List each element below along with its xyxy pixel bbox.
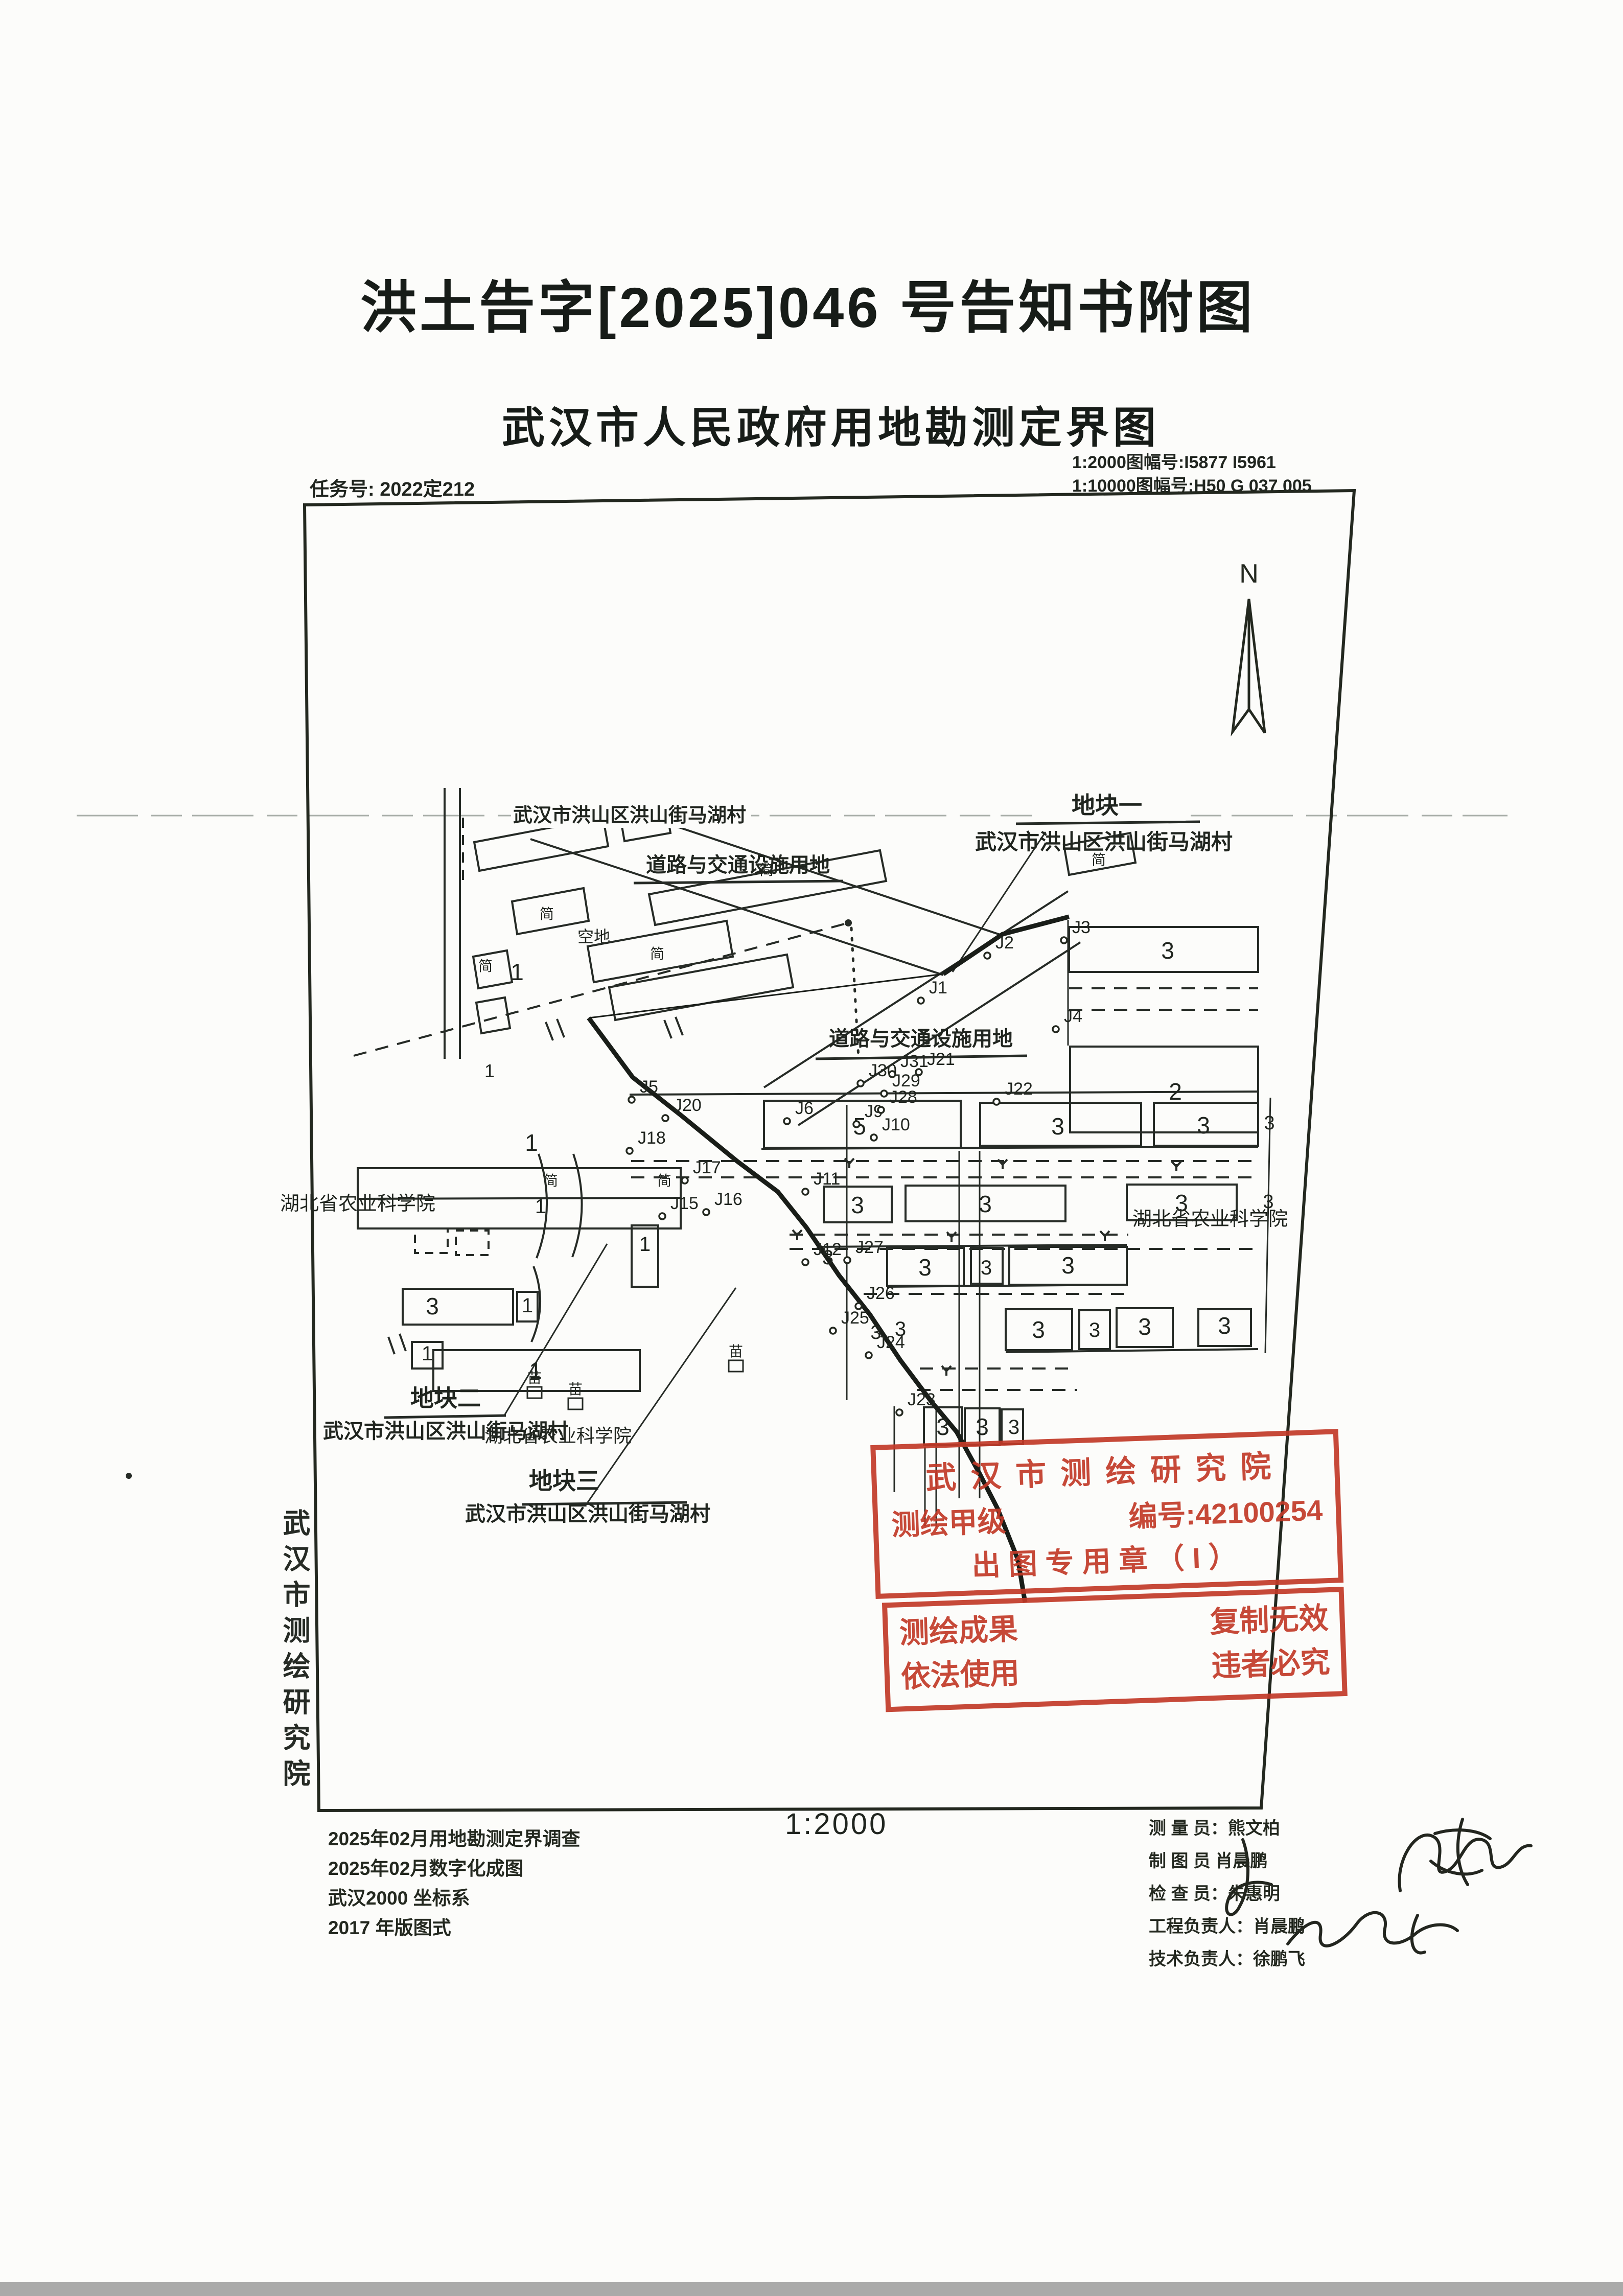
boundary-point-marker	[627, 1148, 633, 1154]
map-region-label: 武汉市洪山区洪山街马湖村	[513, 805, 746, 826]
map-region-label: 武汉市洪山区洪山街马湖村	[323, 1420, 568, 1443]
stamp-upper-box: 武汉市测绘研究院 测绘甲级 编号:42100254 出图专用章（I）	[870, 1429, 1343, 1599]
boundary-point-marker	[830, 1328, 836, 1334]
scanned-survey-document: 洪土告字[2025]046 号告知书附图 武汉市人民政府用地勘测定界图 1:20…	[0, 0, 1623, 2296]
boundary-point-marker	[1061, 937, 1067, 943]
stamp-lower-box: 测绘成果 复制无效 依法使用 违者必究	[882, 1587, 1348, 1712]
boundary-point-marker	[857, 1080, 864, 1086]
parcel-number: 3	[1161, 937, 1174, 964]
boundary-point-label: J24	[877, 1333, 905, 1352]
boundary-point-label: J18	[638, 1128, 666, 1148]
parcel-number: 1	[484, 1060, 495, 1081]
boundary-point-marker	[881, 1091, 887, 1097]
map-notes: 2025年02月用地勘测定界调查 2025年02月数字化成图 武汉2000 坐标…	[328, 1824, 580, 1943]
boundary-point-label: J21	[927, 1050, 955, 1069]
north-arrow-icon	[1233, 599, 1265, 733]
parcel-number: 3	[918, 1254, 932, 1281]
boundary-point-label: J3	[1072, 918, 1091, 937]
map-region-label: 地块三	[529, 1468, 599, 1494]
boundary-point-label: J12	[814, 1240, 842, 1259]
boundary-point-marker	[878, 1107, 884, 1113]
map-region-label: 武汉市洪山区洪山街马湖村	[465, 1503, 710, 1525]
boundary-point-label: J5	[640, 1077, 658, 1097]
north-label: N	[1239, 559, 1259, 589]
building-type-char: 简	[544, 1173, 558, 1189]
boundary-point-label: J4	[1064, 1007, 1082, 1026]
map-region-label: 湖北省农业科学院	[280, 1193, 435, 1215]
building-type-char: 简	[1092, 852, 1106, 868]
parcel-number: 3	[851, 1192, 864, 1218]
parcel-number: 1	[422, 1342, 433, 1365]
stamp-results-label: 测绘成果	[899, 1607, 1019, 1655]
boundary-point-marker	[784, 1118, 790, 1124]
stamp-grade: 测绘甲级	[891, 1498, 1007, 1544]
parcel-number: 1	[511, 959, 524, 985]
boundary-point-marker	[871, 1134, 877, 1141]
boundary-point-label: J23	[908, 1390, 936, 1409]
parcel-number: 3	[1032, 1316, 1045, 1343]
building-type-char: 简	[650, 946, 664, 962]
parcel-number: 3	[1197, 1112, 1210, 1139]
parcel-number: 3	[1089, 1319, 1100, 1341]
scan-edge-artifact	[0, 2282, 1623, 2296]
boundary-point-label: J20	[674, 1096, 702, 1115]
parcel-number: 3	[979, 1191, 992, 1217]
parcel-number: 3	[1263, 1191, 1273, 1213]
note-coordinate-system: 武汉2000 坐标系	[328, 1884, 580, 1913]
boundary-point-marker	[918, 998, 924, 1004]
boundary-point-marker	[853, 1121, 860, 1127]
boundary-point-marker	[1053, 1026, 1059, 1032]
parcel-number: 3	[1008, 1416, 1019, 1439]
building-type-char: 苗	[729, 1343, 743, 1359]
boundary-point-label: J10	[882, 1115, 910, 1134]
map-region-label: 道路与交通设施用地	[829, 1028, 1013, 1050]
building-type-char: 简	[478, 958, 493, 974]
boundary-point-marker	[844, 1257, 850, 1263]
boundary-point-marker	[984, 953, 990, 959]
boundary-point-label: J15	[670, 1194, 699, 1213]
parcel-number: 2	[1169, 1078, 1182, 1105]
boundary-point-label: J11	[814, 1169, 840, 1189]
building-type-char: 简	[657, 1173, 671, 1189]
boundary-point-marker	[896, 1409, 902, 1416]
boundary-point-marker	[889, 1071, 895, 1077]
survey-map: N	[0, 0, 1623, 2296]
credit-project-lead: 工程负责人：肖晨鹏	[1149, 1910, 1305, 1943]
boundary-point-marker	[662, 1115, 668, 1121]
building-type-char: 苗	[527, 1370, 542, 1386]
map-region-label: 地块一	[1072, 792, 1142, 819]
boundary-point-label: J6	[795, 1099, 814, 1118]
building-type-char: 简	[759, 862, 774, 878]
boundary-point-label: J1	[929, 978, 947, 998]
boundary-point-marker	[682, 1177, 688, 1184]
boundary-point-label: J28	[889, 1087, 917, 1107]
stamp-lawful-use-label: 依法使用	[900, 1651, 1021, 1699]
producer-side-text: 武汉市测绘研究院	[274, 1509, 314, 1795]
boundary-point-label: J25	[841, 1308, 869, 1328]
note-digitize-date: 2025年02月数字化成图	[328, 1854, 580, 1884]
parcel-number: 1	[639, 1233, 651, 1256]
map-region-label: 道路与交通设施用地	[646, 854, 830, 876]
parcel-number: 3	[1138, 1313, 1151, 1340]
parcel-number: 3	[1218, 1312, 1231, 1339]
stamp-license-number: 编号:42100254	[1128, 1487, 1323, 1535]
boundary-point-marker	[802, 1189, 808, 1195]
map-region-label: 空地	[577, 927, 610, 946]
parcel-number: 1	[525, 1129, 538, 1156]
credits-block: 测 量 员：熊文柏 制 图 员 肖晨鹏 检 查 员：朱惠明 工程负责人：肖晨鹏 …	[1149, 1812, 1305, 1976]
credit-cartographer: 制 图 员 肖晨鹏	[1149, 1845, 1305, 1877]
boundary-point-label: J31	[900, 1052, 929, 1071]
map-region-label: 武汉市洪山区洪山街马湖村	[975, 830, 1233, 854]
map-region-label: 地块二	[410, 1385, 481, 1411]
parcel-number: 3	[936, 1413, 949, 1440]
stamp-violators-label: 违者必究	[1211, 1640, 1331, 1688]
parcel-number: 3	[1051, 1113, 1064, 1140]
parcel-number: 3	[981, 1257, 992, 1279]
boundary-point-label: J26	[867, 1284, 895, 1303]
boundary-point-label: J2	[995, 933, 1014, 953]
boundary-point-label: J16	[714, 1190, 743, 1209]
building-type-char: 简	[540, 906, 554, 922]
parcel-number: 1	[535, 1195, 546, 1218]
parcel-number: 3	[976, 1413, 989, 1440]
boundary-point-label: J27	[855, 1238, 884, 1257]
credit-technical-lead: 技术负责人：徐鹏飞	[1149, 1943, 1305, 1976]
survey-institute-stamp: 武汉市测绘研究院 测绘甲级 编号:42100254 出图专用章（I） 测绘成果 …	[870, 1429, 1348, 1712]
stamp-copy-invalid-label: 复制无效	[1209, 1596, 1329, 1644]
parcel-number: 3	[426, 1293, 439, 1319]
boundary-point-marker	[659, 1213, 665, 1219]
boundary-point-marker	[802, 1259, 808, 1265]
map-linework	[126, 788, 1270, 1527]
building-type-char: 苗	[568, 1381, 583, 1397]
parcel-number: 3	[1175, 1190, 1188, 1216]
credit-surveyor: 测 量 员：熊文柏	[1149, 1812, 1305, 1845]
map-scale: 1:2000	[785, 1807, 888, 1841]
note-survey-date: 2025年02月用地勘测定界调查	[328, 1824, 580, 1854]
parcel-number: 1	[522, 1294, 533, 1317]
boundary-point-label: J17	[693, 1158, 721, 1177]
note-symbology-edition: 2017 年版图式	[328, 1913, 580, 1943]
parcel-number: 3	[1061, 1252, 1075, 1279]
boundary-point-marker	[703, 1209, 709, 1215]
boundary-point-label: J22	[1005, 1079, 1033, 1099]
credit-checker: 检 查 员：朱惠明	[1149, 1877, 1305, 1910]
boundary-point-marker	[629, 1097, 635, 1103]
boundary-point-marker	[993, 1099, 1000, 1105]
boundary-point-marker	[916, 1069, 922, 1075]
boundary-point-marker	[866, 1352, 872, 1358]
parcel-number: 3	[1264, 1112, 1274, 1134]
